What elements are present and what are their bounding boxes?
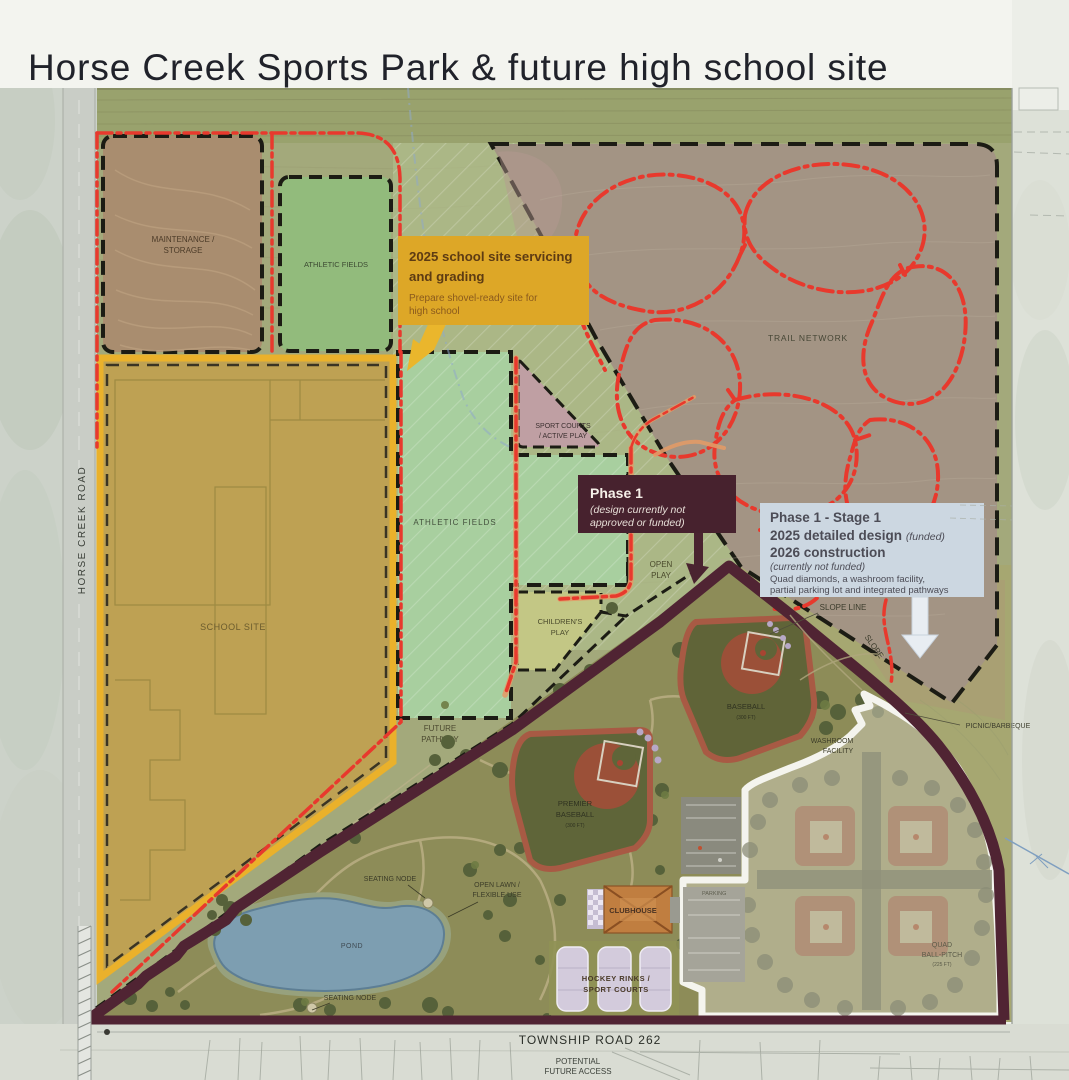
svg-text:/ ACTIVE PLAY: / ACTIVE PLAY: [539, 433, 587, 440]
svg-text:FLEXIBLE USE: FLEXIBLE USE: [472, 892, 521, 899]
svg-text:(300 FT): (300 FT): [736, 715, 756, 721]
svg-text:FUTURE: FUTURE: [424, 724, 456, 733]
svg-text:approved or funded): approved or funded): [590, 517, 685, 529]
svg-text:2025 school site servicing: 2025 school site servicing: [409, 249, 572, 264]
svg-text:WASHROOM: WASHROOM: [811, 738, 854, 745]
svg-text:Quad diamonds, a washroom faci: Quad diamonds, a washroom facility,: [770, 574, 925, 585]
svg-text:POND: POND: [341, 943, 363, 950]
svg-text:Phase 1 - Stage 1: Phase 1 - Stage 1: [770, 510, 882, 525]
svg-text:TOWNSHIP ROAD 262: TOWNSHIP ROAD 262: [519, 1033, 662, 1047]
svg-text:PLAY: PLAY: [551, 628, 570, 637]
svg-text:SEATING NODE: SEATING NODE: [324, 995, 377, 1002]
svg-text:CHILDREN'S: CHILDREN'S: [538, 617, 583, 626]
svg-text:STORAGE: STORAGE: [164, 246, 203, 255]
svg-text:SPORT COURTS: SPORT COURTS: [583, 985, 649, 994]
svg-text:SPORT COURTS: SPORT COURTS: [535, 423, 591, 430]
svg-text:Phase 1: Phase 1: [590, 485, 643, 501]
svg-text:PLAY: PLAY: [651, 571, 672, 580]
svg-text:2025 detailed design (funded): 2025 detailed design (funded): [770, 528, 945, 543]
svg-text:HOCKEY RINKS /: HOCKEY RINKS /: [582, 974, 651, 983]
svg-text:partial parking lot and integr: partial parking lot and integrated pathw…: [770, 585, 949, 596]
svg-text:OPEN LAWN /: OPEN LAWN /: [474, 882, 520, 889]
svg-text:BASEBALL: BASEBALL: [727, 702, 765, 711]
svg-text:(currently not funded): (currently not funded): [770, 562, 865, 573]
svg-text:ATHLETIC FIELDS: ATHLETIC FIELDS: [304, 260, 368, 269]
svg-text:CLUBHOUSE: CLUBHOUSE: [609, 906, 657, 915]
svg-text:and grading: and grading: [409, 269, 484, 284]
svg-text:OPEN: OPEN: [650, 560, 673, 569]
svg-text:(design currently not: (design currently not: [590, 504, 686, 516]
svg-text:BASEBALL: BASEBALL: [556, 810, 594, 819]
svg-text:POTENTIAL: POTENTIAL: [556, 1057, 601, 1066]
svg-text:SCHOOL SITE: SCHOOL SITE: [200, 622, 266, 632]
svg-text:FACILITY: FACILITY: [823, 748, 854, 755]
svg-text:ATHLETIC FIELDS: ATHLETIC FIELDS: [413, 518, 496, 527]
svg-text:HORSE CREEK ROAD: HORSE CREEK ROAD: [77, 466, 88, 594]
svg-text:SLOPE LINE: SLOPE LINE: [820, 603, 867, 612]
svg-text:(300 FT): (300 FT): [565, 823, 585, 829]
svg-text:(225 FT): (225 FT): [932, 962, 952, 968]
svg-text:FUTURE ACCESS: FUTURE ACCESS: [544, 1067, 611, 1076]
svg-text:high school: high school: [409, 306, 460, 317]
svg-text:QUAD: QUAD: [932, 942, 952, 949]
svg-text:Prepare shovel-ready site for: Prepare shovel-ready site for: [409, 293, 538, 304]
svg-text:PICNIC/BARBEQUE: PICNIC/BARBEQUE: [966, 723, 1031, 730]
svg-text:PREMIER: PREMIER: [558, 799, 593, 808]
svg-text:BALL-PITCH: BALL-PITCH: [922, 952, 962, 959]
svg-text:Horse Creek Sports Park & futu: Horse Creek Sports Park & future high sc…: [28, 47, 889, 88]
svg-text:2026 construction: 2026 construction: [770, 545, 886, 560]
svg-text:MAINTENANCE /: MAINTENANCE /: [152, 235, 215, 244]
svg-text:PARKING: PARKING: [702, 891, 726, 897]
svg-text:TRAIL NETWORK: TRAIL NETWORK: [768, 333, 848, 343]
svg-text:SEATING NODE: SEATING NODE: [364, 876, 417, 883]
